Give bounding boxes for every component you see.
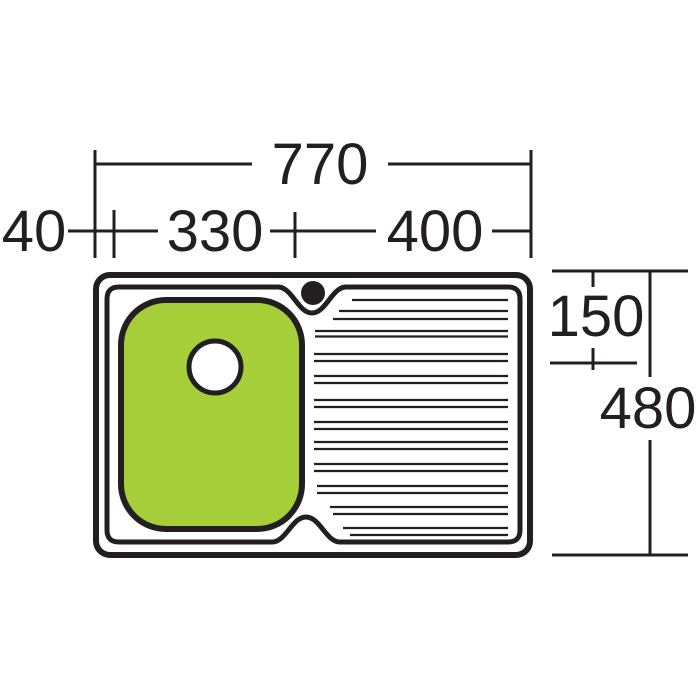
sink-plan-view <box>96 275 530 555</box>
dim-segment-widths: 40 330 400 <box>2 199 531 264</box>
dim-label-drainer-width: 400 <box>387 199 484 264</box>
sink-dimension-diagram-page: 770 40 330 400 150 <box>0 0 700 700</box>
dim-label-tap-ledge: 150 <box>548 284 645 349</box>
bowl <box>121 300 302 529</box>
dim-label-overall-depth: 480 <box>600 376 697 441</box>
drain-hole <box>189 341 241 393</box>
dim-label-left-rim: 40 <box>2 199 67 264</box>
dim-label-overall-width: 770 <box>272 132 369 197</box>
dim-depths: 150 480 <box>548 271 697 555</box>
sink-dimension-diagram: 770 40 330 400 150 <box>0 0 700 700</box>
tap-hole <box>301 281 325 305</box>
dim-label-bowl-width: 330 <box>167 199 264 264</box>
